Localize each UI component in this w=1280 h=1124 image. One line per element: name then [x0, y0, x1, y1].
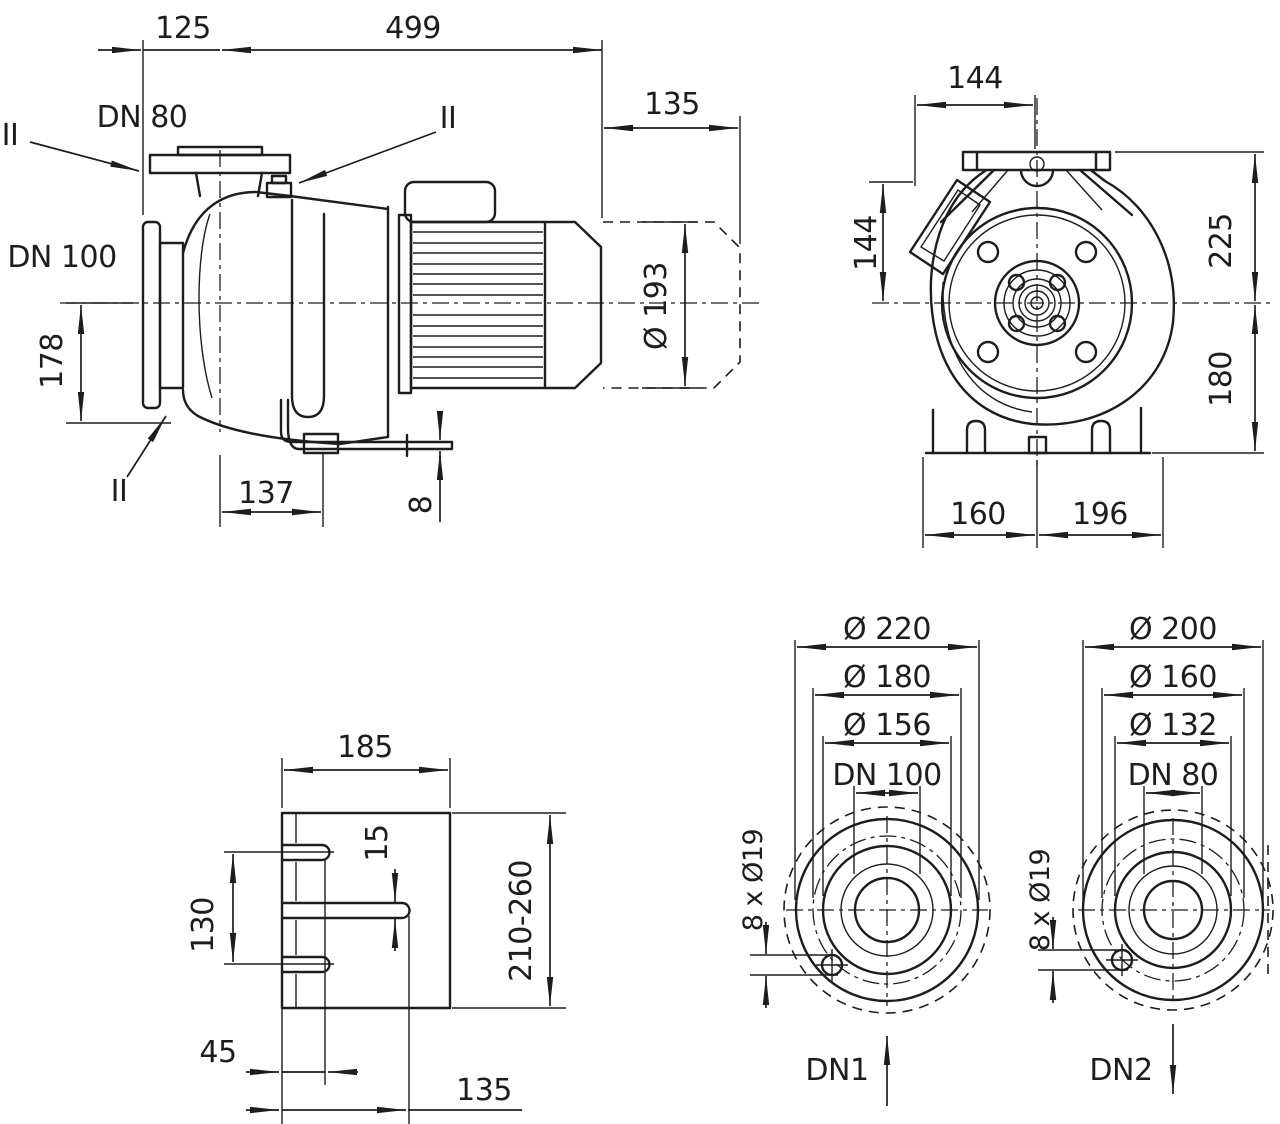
drain-pipe	[281, 400, 452, 449]
label-dn100-flange: DN 100	[832, 758, 941, 793]
dim-135-label: 135	[644, 87, 700, 122]
section-leader-3	[127, 416, 166, 477]
dim-125-label: 125	[155, 11, 211, 46]
suction-flange-view: Ø 220 Ø 180 Ø 156 DN 100 8 x Ø19 DN1	[738, 612, 990, 1106]
dim-135b-label: 135	[456, 1073, 512, 1108]
middle-slot	[282, 903, 410, 918]
dim-178-label: 178	[35, 333, 70, 389]
flange-dn80-outline	[1073, 810, 1273, 1010]
section-leader-2	[299, 132, 436, 183]
label-8xd19-2: 8 x Ø19	[1025, 849, 1056, 951]
dim-137-label: 137	[238, 476, 294, 511]
dim-od200-label: Ø 200	[1129, 612, 1217, 647]
motor-fins	[413, 232, 543, 378]
dim-144-height-label: 144	[849, 215, 884, 271]
volute-top	[183, 192, 388, 253]
suction-flange	[143, 222, 160, 408]
side-view-labels: 125 499 135 DN 80 DN 100 137 178 8 Ø 193…	[2, 11, 700, 514]
terminal-box-front	[910, 180, 990, 274]
dim-rf156-label: Ø 156	[843, 708, 931, 743]
dim-210-260-label: 210-260	[504, 860, 539, 982]
motor-body	[411, 222, 601, 388]
dim-144-width-label: 144	[947, 61, 1003, 96]
dim-160-label: 160	[950, 497, 1006, 532]
front-view-dimensions	[869, 95, 1264, 548]
label-dn1: DN1	[805, 1053, 868, 1088]
support-bracket-view: 185 130 15 210-260 45 135	[186, 730, 566, 1124]
section-marker-1: II	[2, 118, 19, 153]
volute-inner-arc	[199, 214, 212, 398]
dim-rf132-label: Ø 132	[1129, 708, 1217, 743]
section-marker-3: II	[111, 474, 128, 509]
front-view: 144 144 225 180 160 196	[849, 61, 1270, 548]
bracket-outline	[224, 813, 450, 1124]
front-view-labels: 144 144 225 180 160 196	[849, 61, 1239, 532]
base-feet	[926, 408, 1150, 453]
section-leader-1	[30, 142, 139, 171]
dim-130-label: 130	[186, 897, 221, 953]
label-dn100: DN 100	[7, 240, 116, 275]
volute-throat	[292, 200, 324, 417]
label-8xd19-1: 8 x Ø19	[738, 829, 769, 931]
side-view: 125 499 135 DN 80 DN 100 137 178 8 Ø 193…	[2, 11, 760, 527]
label-dn80-flange: DN 80	[1128, 758, 1219, 793]
label-dn80: DN 80	[97, 100, 188, 135]
dim-od220-label: Ø 220	[843, 612, 931, 647]
suction-hub	[160, 243, 183, 388]
dim-bc160-label: Ø 160	[1129, 660, 1217, 695]
vent-plug-cap	[272, 176, 286, 183]
dim-bc180-label: Ø 180	[843, 660, 931, 695]
discharge-flange-view: Ø 200 Ø 160 Ø 132 DN 80 8 x Ø19 DN2	[1025, 612, 1273, 1094]
dim-15-label: 15	[360, 824, 395, 861]
dim-185-label: 185	[337, 730, 393, 765]
dim-dia193-label: Ø 193	[639, 262, 674, 350]
label-dn2: DN2	[1089, 1053, 1152, 1088]
pump-dimension-drawing: 125 499 135 DN 80 DN 100 137 178 8 Ø 193…	[0, 0, 1280, 1124]
motor-flange-ring	[399, 215, 411, 393]
dim-180-label: 180	[1204, 351, 1239, 407]
dim-196-label: 196	[1072, 497, 1128, 532]
dim-45-label: 45	[199, 1035, 236, 1070]
terminal-box	[405, 182, 495, 222]
flange-dn80-labels: Ø 200 Ø 160 Ø 132 DN 80 8 x Ø19 DN2	[1025, 612, 1218, 1088]
pump-front-outline	[872, 98, 1270, 468]
volute-bottom	[183, 390, 388, 444]
flange-dn100-outline	[784, 807, 990, 1013]
drawing-canvas: 125 499 135 DN 80 DN 100 137 178 8 Ø 193…	[0, 0, 1280, 1124]
section-marker-2: II	[440, 101, 457, 136]
dim-499-label: 499	[385, 11, 441, 46]
dim-8-label: 8	[404, 496, 439, 515]
dim-225-label: 225	[1204, 213, 1239, 269]
